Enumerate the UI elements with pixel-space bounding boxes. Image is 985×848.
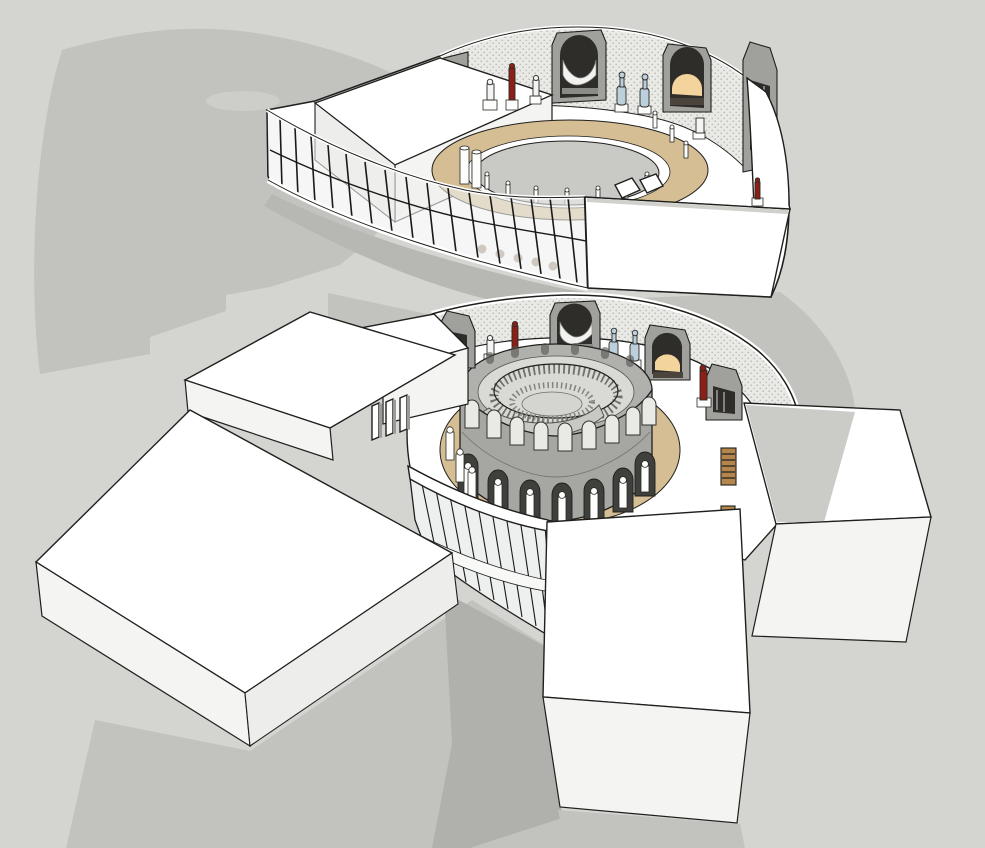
lower-niche-right xyxy=(706,364,742,420)
model-stage xyxy=(0,0,985,848)
wing-front xyxy=(543,509,750,823)
wing-front-face xyxy=(543,697,750,823)
oculus-light-spot xyxy=(206,91,280,111)
wing-front-roof xyxy=(543,509,750,713)
lower-niche-amber xyxy=(645,325,690,380)
model-viewport[interactable] xyxy=(0,0,985,848)
bench-1 xyxy=(721,448,736,485)
wing-right-front xyxy=(752,517,931,642)
drum-inner-floor xyxy=(522,392,582,416)
upper-niche-drapery xyxy=(552,30,606,103)
upper-niche-amber xyxy=(663,44,711,112)
